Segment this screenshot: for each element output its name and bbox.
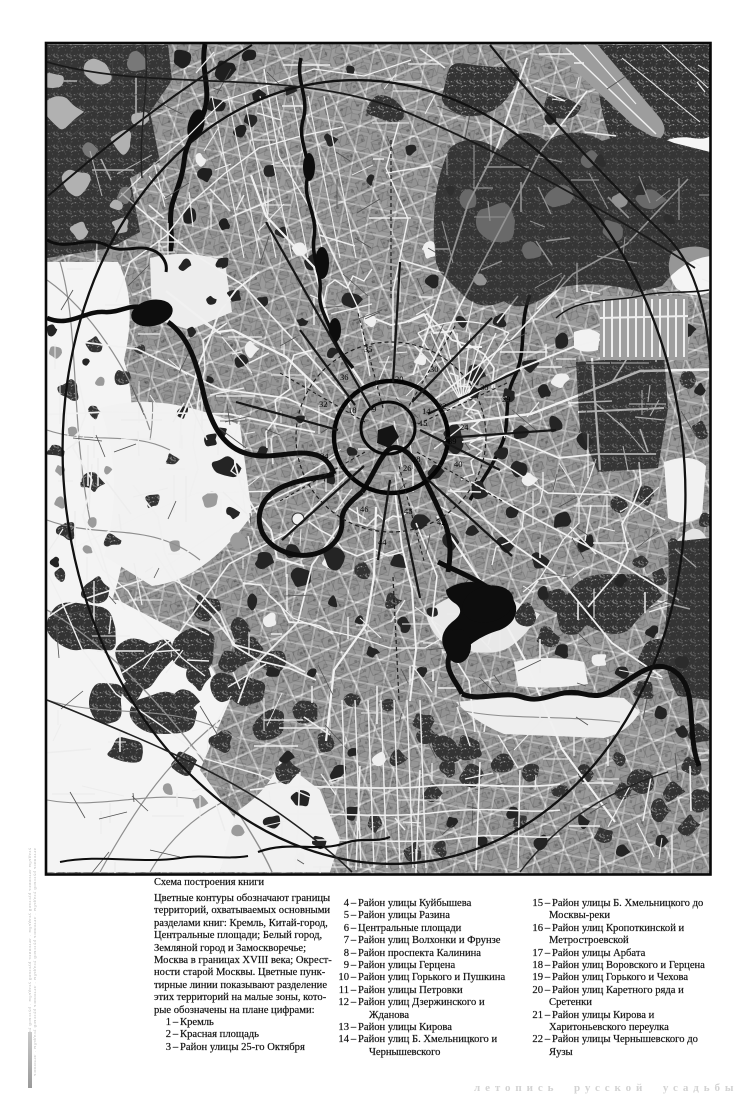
svg-text:24: 24: [460, 422, 469, 432]
svg-text:18: 18: [348, 405, 357, 415]
svg-text:30: 30: [430, 364, 439, 374]
svg-text:44: 44: [378, 537, 387, 547]
svg-text:28: 28: [412, 454, 421, 464]
svg-text:22: 22: [438, 401, 447, 411]
svg-text:32: 32: [319, 399, 328, 409]
svg-text:15: 15: [419, 418, 428, 428]
svg-text:20: 20: [395, 374, 404, 384]
svg-text:26: 26: [403, 463, 412, 473]
svg-text:39: 39: [448, 436, 457, 446]
svg-text:36: 36: [340, 372, 349, 382]
svg-text:38: 38: [480, 382, 489, 392]
svg-text:48: 48: [404, 506, 413, 516]
svg-text:9: 9: [372, 404, 376, 414]
svg-text:46: 46: [360, 504, 369, 514]
svg-text:35: 35: [364, 344, 373, 354]
svg-text:40: 40: [454, 459, 463, 469]
svg-text:34: 34: [320, 451, 329, 461]
svg-text:29: 29: [502, 394, 511, 404]
svg-text:14: 14: [422, 406, 431, 416]
svg-text:42: 42: [437, 517, 446, 527]
